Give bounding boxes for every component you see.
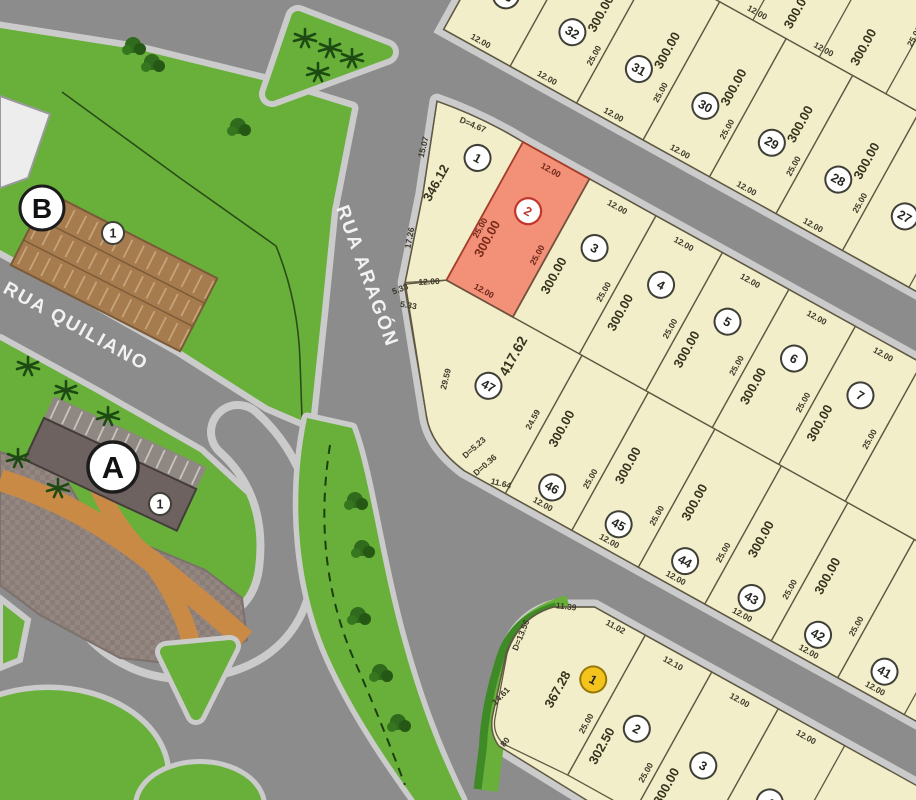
svg-text:A: A [102,450,124,485]
lot-u1-front: 12.00 [418,276,440,287]
site-plan-map: 33 12.00 32 300.00 12.00 25.00 31 300.00… [0,0,916,800]
svg-text:1: 1 [110,227,117,241]
svg-text:B: B [32,193,52,224]
area-a-lot-badge[interactable]: 1 [149,493,171,515]
svg-text:1: 1 [157,498,164,512]
area-a-marker[interactable]: A [88,442,138,492]
area-b-marker[interactable]: B [20,186,64,230]
area-b-lot-badge[interactable]: 1 [102,222,124,244]
